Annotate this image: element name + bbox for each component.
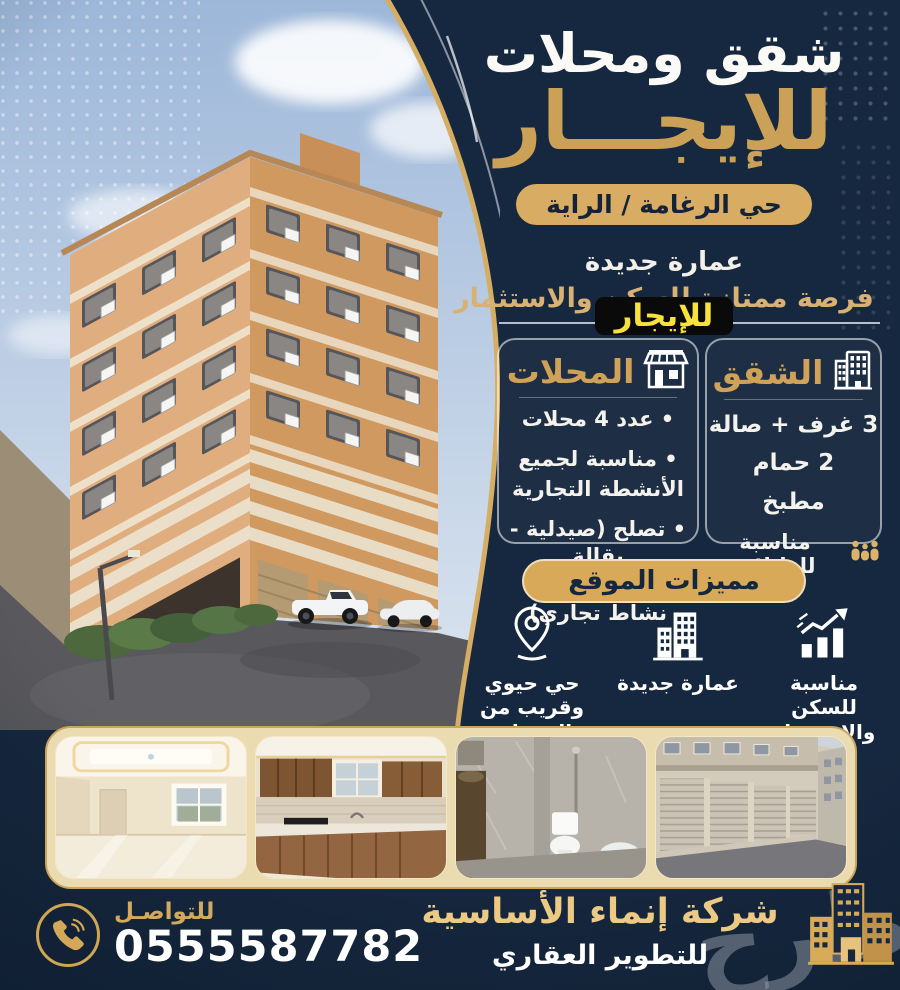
photo-strip [45, 726, 857, 889]
divider-line [519, 397, 677, 398]
building-status: عمارة جديدة [428, 247, 900, 277]
storefront-icon [643, 349, 689, 393]
apartment-building-icon [832, 349, 874, 395]
features-badge: مميزات الموقع [522, 559, 806, 603]
company-tagline: للتطوير العقاري [450, 940, 750, 971]
living-room-photo [55, 736, 247, 879]
features-pill-wrap: مميزات الموقع [428, 559, 900, 603]
rent-tag: للإيجار [595, 297, 734, 335]
shop-feature: الأنشطة التجارية [499, 476, 697, 503]
building-icon [651, 606, 705, 662]
shops-street-photo [655, 736, 847, 879]
apartments-box-title: الشقق [713, 353, 824, 392]
shops-box-title: المحلات [507, 352, 635, 391]
rent-tag-wrap: للإيجار [428, 297, 900, 335]
real-estate-poster: شقق ومحلات للإيجـــار حي الرغامة / الراي… [0, 0, 900, 990]
phone-number[interactable]: 0555587782 [114, 925, 423, 970]
bathroom-photo [455, 736, 647, 879]
location-badge-wrap: حي الرغامة / الراية [428, 184, 900, 225]
shop-feature: • مناسبة لجميع [499, 446, 697, 473]
phone-icon [36, 903, 100, 967]
kitchen-photo [255, 736, 447, 879]
feature-neighborhood: حي حيوي وقريب من الخدمات [466, 606, 598, 744]
growth-chart-icon [795, 606, 853, 662]
location-badge: حي الرغامة / الراية [516, 184, 812, 225]
location-pin-icon [510, 606, 554, 662]
divider-line [724, 399, 862, 400]
apartment-feature: مطبخ [707, 489, 880, 515]
shops-box: المحلات • عدد 4 محلات • مناسبة لجميع الأ… [497, 338, 699, 544]
feature-investment: مناسبة للسكن والاستثمار [758, 606, 890, 744]
feature-new-building: عمارة جديدة [612, 606, 744, 744]
shop-feature: • عدد 4 محلات [499, 406, 697, 433]
apartment-feature: 2 حمام [707, 450, 880, 476]
apartments-box: الشقق 3 غرف + صالة 2 حمام مطبخ مناسبة لل… [705, 338, 882, 544]
company-logo-icon [806, 880, 896, 974]
contact-block[interactable]: للتواصـل 0555587782 [36, 899, 423, 970]
building-photo [0, 0, 500, 730]
rent-title: للإيجـــار [428, 80, 900, 164]
apartment-feature: 3 غرف + صالة [707, 412, 880, 438]
company-name: شركة إنماء الأساسية [408, 892, 792, 932]
features-row: مناسبة للسكن والاستثمار عمارة جديدة [466, 606, 890, 744]
feature-label: عمارة جديدة [612, 671, 744, 695]
